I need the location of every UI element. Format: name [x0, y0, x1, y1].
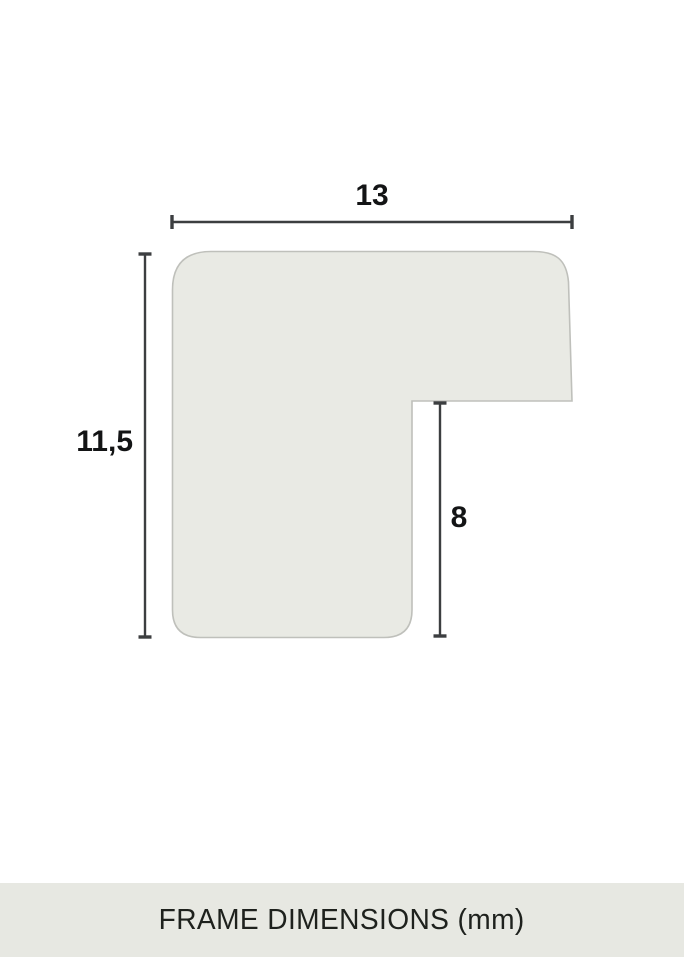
width-dimension-label: 13 — [172, 178, 572, 214]
rabbet-depth-dimension-label: 8 — [444, 500, 474, 536]
height-dimension-line — [139, 254, 152, 637]
frame-dimensions-diagram: 13 11,5 8 — [0, 0, 684, 883]
height-dimension-label: 11,5 — [76, 424, 133, 460]
width-dimension-line — [172, 215, 572, 229]
caption-bar: FRAME DIMENSIONS (mm) — [0, 883, 684, 957]
caption-text: FRAME DIMENSIONS (mm) — [159, 904, 525, 937]
frame-profile-shape — [173, 252, 573, 638]
